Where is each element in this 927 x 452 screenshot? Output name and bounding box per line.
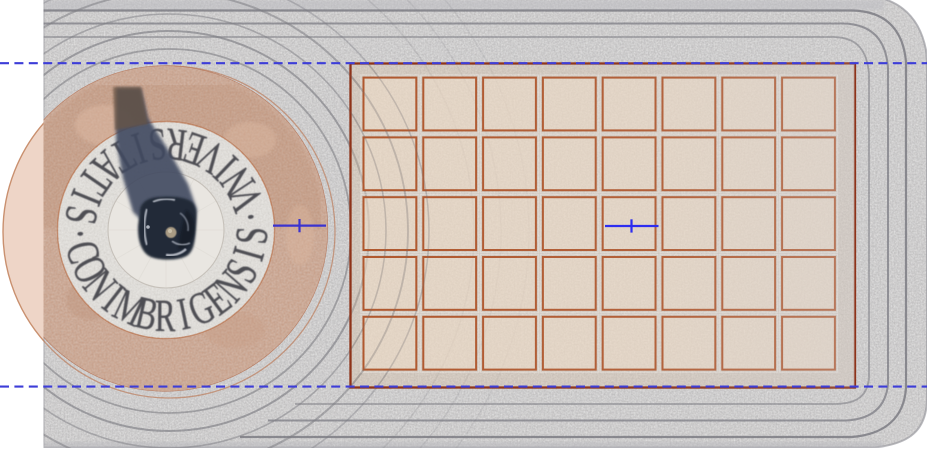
svg-text:R: R bbox=[155, 291, 177, 342]
svg-text:S: S bbox=[226, 225, 278, 245]
